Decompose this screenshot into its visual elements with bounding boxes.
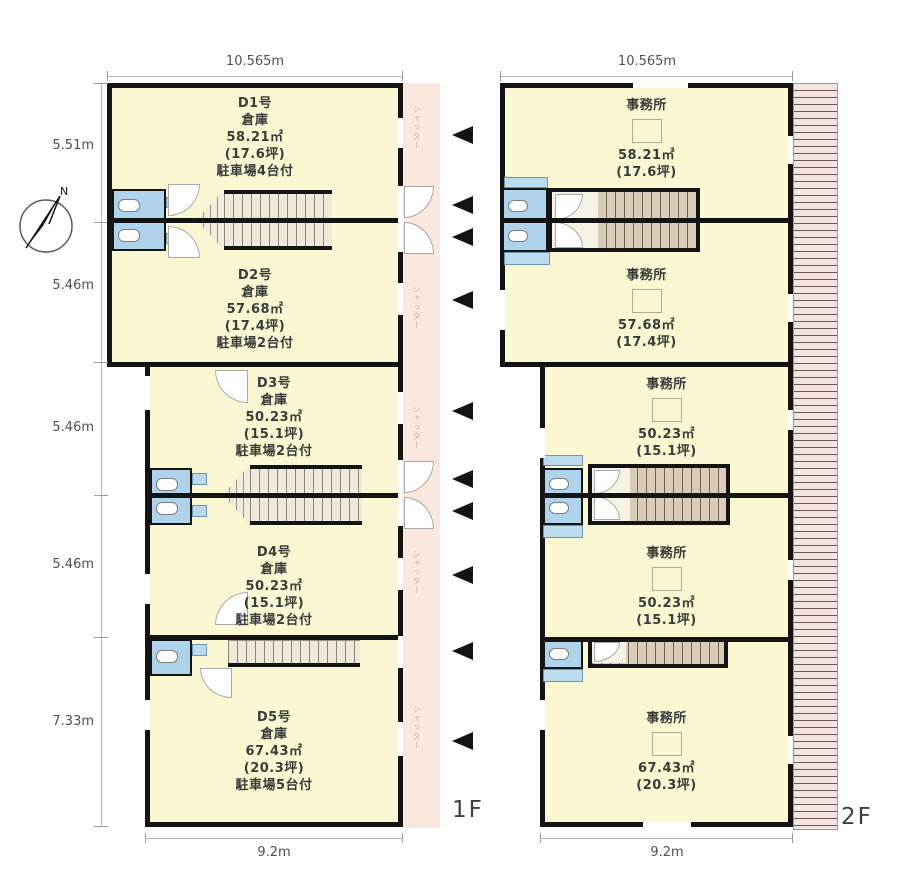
door-gap <box>398 283 403 315</box>
unit-type: 倉庫 <box>150 392 398 409</box>
bottom-dimension-line-2f <box>540 838 793 839</box>
unit-label-d4: D4号 倉庫 50.23㎡ (15.1坪) 駐車場2台付 <box>150 544 398 629</box>
unit-type: 倉庫 <box>112 112 398 129</box>
unit-parking: 駐車場2台付 <box>150 443 398 460</box>
entrance-arrow-icon <box>452 566 473 584</box>
unit-name: 事務所 <box>545 710 788 727</box>
shutter-label: シャッター <box>411 705 422 785</box>
dim-top-2f: 10.565m <box>572 54 722 69</box>
unit-name: D3号 <box>150 375 398 392</box>
entrance-arrow-icon <box>452 228 473 246</box>
unit-tsubo: (15.1坪) <box>545 443 788 460</box>
basin-icon <box>192 644 207 656</box>
dim-tick <box>94 826 108 827</box>
basin-icon <box>192 473 207 485</box>
wall-office4-5 <box>540 637 793 642</box>
unit-parking: 駐車場2台付 <box>112 335 398 352</box>
wc-counter <box>543 525 583 538</box>
top-dimension-line-2f <box>500 76 793 77</box>
entrance-arrow-icon <box>452 470 473 488</box>
wall-office1-2 <box>500 218 793 223</box>
dim-tick <box>792 71 793 81</box>
window-gap <box>788 136 793 164</box>
top-dimension-line-1f <box>107 76 403 77</box>
wc-counter <box>504 252 550 265</box>
dim-tick <box>94 637 108 638</box>
dim-left-5: 7.33m <box>28 714 94 729</box>
window-gap <box>788 736 793 764</box>
unit-area: 50.23㎡ <box>150 578 398 595</box>
dim-bottom-1f: 9.2m <box>199 845 349 860</box>
shutter-label: シャッター <box>411 105 422 185</box>
unit-area: 50.23㎡ <box>150 409 398 426</box>
window-gap <box>643 822 691 827</box>
unit-label-d1: D1号 倉庫 58.21㎡ (17.6坪) 駐車場4台付 <box>112 95 398 180</box>
window-gap <box>788 294 793 322</box>
toilet-icon <box>508 230 528 242</box>
floorplan-canvas: N 5.51m 5.46m 5.46m 5.46m 7.33m 10.565m … <box>0 0 900 880</box>
toilet-icon <box>156 478 178 491</box>
dim-tick <box>145 833 146 843</box>
unit-type: 倉庫 <box>150 726 398 743</box>
unit-tsubo: (15.1坪) <box>150 595 398 612</box>
staircase <box>228 640 360 667</box>
dim-tick <box>402 833 403 843</box>
wall-d1-d2 <box>107 218 403 223</box>
dim-tick <box>792 833 793 843</box>
unit-label-d3: D3号 倉庫 50.23㎡ (15.1坪) 駐車場2台付 <box>150 375 398 460</box>
unit-name: D2号 <box>112 267 398 284</box>
toilet-icon <box>549 648 569 660</box>
toilet-icon <box>156 650 178 663</box>
dim-bottom-2f: 9.2m <box>592 845 742 860</box>
dim-left-2: 5.46m <box>28 278 94 293</box>
entrance-arrow-icon <box>452 402 473 420</box>
dim-tick <box>107 71 108 81</box>
dim-left-1: 5.51m <box>28 138 94 153</box>
entrance-arrow-icon <box>452 126 473 144</box>
door-gap <box>398 460 403 526</box>
floor2-label: 2F <box>841 804 873 830</box>
shutter-label: シャッター <box>411 285 422 365</box>
unit-name: D1号 <box>112 95 398 112</box>
window-gap <box>788 560 793 580</box>
dim-left-3: 5.46m <box>28 420 94 435</box>
office-label-3: 事務所 50.23㎡ (15.1坪) <box>545 376 788 460</box>
dim-tick <box>500 71 501 81</box>
door-gap <box>398 392 403 424</box>
unit-label-d2: D2号 倉庫 57.68㎡ (17.4坪) 駐車場2台付 <box>112 267 398 352</box>
roof-hatch-icon <box>632 119 662 143</box>
door-gap <box>398 636 403 668</box>
unit-area: 57.68㎡ <box>505 317 788 334</box>
office-label-5: 事務所 67.43㎡ (20.3坪) <box>545 710 788 794</box>
wall-office3-4 <box>540 493 793 498</box>
toilet-icon <box>508 200 528 212</box>
door-gap <box>398 558 403 590</box>
office-label-4: 事務所 50.23㎡ (15.1坪) <box>545 545 788 629</box>
unit-tsubo: (20.3坪) <box>150 760 398 777</box>
bottom-dimension-line-1f <box>145 838 403 839</box>
unit-area: 57.68㎡ <box>112 301 398 318</box>
window-gap <box>788 410 793 430</box>
office-label-1: 事務所 58.21㎡ (17.6坪) <box>505 97 788 181</box>
unit-area: 67.43㎡ <box>150 743 398 760</box>
unit-area: 58.21㎡ <box>112 129 398 146</box>
shutter-label: シャッター <box>411 550 422 630</box>
unit-tsubo: (15.1坪) <box>545 612 788 629</box>
roof-hatch-icon <box>632 289 662 313</box>
unit-type: 倉庫 <box>112 284 398 301</box>
toilet-icon <box>549 502 569 514</box>
unit-tsubo: (17.6坪) <box>505 164 788 181</box>
unit-tsubo: (15.1坪) <box>150 426 398 443</box>
entrance-arrow-icon <box>452 642 473 660</box>
dim-tick <box>94 362 108 363</box>
unit-area: 50.23㎡ <box>545 426 788 443</box>
unit-name: 事務所 <box>505 97 788 114</box>
unit-name: 事務所 <box>545 376 788 393</box>
entrance-arrow-icon <box>452 196 473 214</box>
door-gap <box>398 186 403 252</box>
compass-north-label: N <box>60 185 68 198</box>
floor1-label: 1F <box>452 797 484 823</box>
unit-type: 倉庫 <box>150 561 398 578</box>
entrance-arrow-icon <box>452 502 473 520</box>
stairwell <box>588 640 728 668</box>
dim-top-1f: 10.565m <box>180 54 330 69</box>
toilet-icon <box>118 229 140 242</box>
wall-d4-d5 <box>145 635 403 640</box>
unit-tsubo: (17.4坪) <box>505 334 788 351</box>
unit-tsubo: (17.4坪) <box>112 318 398 335</box>
door-gap <box>398 118 403 148</box>
unit-parking: 駐車場2台付 <box>150 612 398 629</box>
unit-name: D5号 <box>150 709 398 726</box>
balcony-strip <box>793 83 838 830</box>
entrance-arrow-icon <box>452 291 473 309</box>
dim-left-4: 5.46m <box>28 557 94 572</box>
unit-area: 58.21㎡ <box>505 147 788 164</box>
unit-parking: 駐車場4台付 <box>112 163 398 180</box>
wc-counter <box>543 669 583 682</box>
basin-icon <box>192 505 207 517</box>
dim-tick <box>540 833 541 843</box>
dim-tick <box>94 495 108 496</box>
unit-area: 67.43㎡ <box>545 760 788 777</box>
toilet-icon <box>118 199 140 212</box>
unit-tsubo: (17.6坪) <box>112 146 398 163</box>
dim-tick <box>402 71 403 81</box>
office-label-2: 事務所 57.68㎡ (17.4坪) <box>505 267 788 351</box>
compass-icon: N <box>16 184 82 260</box>
unit-label-d5: D5号 倉庫 67.43㎡ (20.3坪) 駐車場5台付 <box>150 709 398 794</box>
roof-hatch-icon <box>652 732 682 756</box>
wall-d3-d4 <box>145 493 403 498</box>
dim-tick <box>94 83 108 84</box>
door-gap <box>398 722 403 756</box>
entrance-arrow-icon <box>452 732 473 750</box>
roof-hatch-icon <box>652 398 682 422</box>
unit-tsubo: (20.3坪) <box>545 777 788 794</box>
left-dimension-line <box>101 83 102 827</box>
unit-area: 50.23㎡ <box>545 595 788 612</box>
unit-name: 事務所 <box>505 267 788 284</box>
unit-name: D4号 <box>150 544 398 561</box>
roof-hatch-icon <box>652 567 682 591</box>
unit-parking: 駐車場5台付 <box>150 777 398 794</box>
window-gap <box>633 83 688 88</box>
toilet-icon <box>156 502 178 515</box>
dim-tick <box>94 222 108 223</box>
unit-name: 事務所 <box>545 545 788 562</box>
toilet-icon <box>549 478 569 490</box>
